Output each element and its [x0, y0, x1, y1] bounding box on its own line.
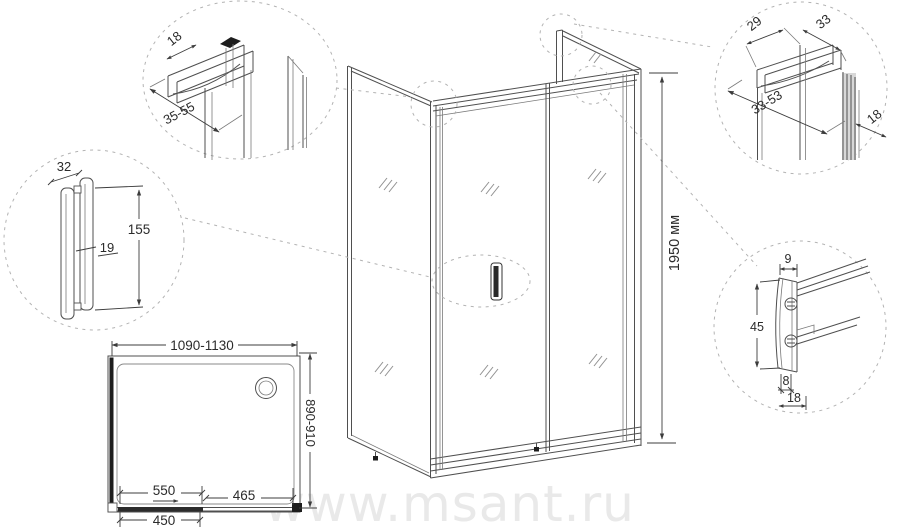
detail-right-profile-section: 9 45 8 18 — [714, 241, 886, 413]
height-dimension: 1950 мм — [647, 73, 683, 443]
detail-top-right-wall-profile: 29 33 33-53 18 — [715, 2, 887, 174]
detail-tl-adjust-range-label: 35-55 — [161, 99, 197, 128]
detail-r-bottom-width-label: 8 — [783, 374, 790, 388]
watermark: www.msant.ru — [264, 475, 635, 528]
detail-tr-outer-width-label: 33 — [813, 11, 834, 32]
screw-icon — [785, 298, 797, 310]
profile-insert-block — [220, 37, 241, 48]
plan-depth-range-label: 890-910 — [303, 399, 318, 447]
plan-opening-width-label: 450 — [153, 513, 176, 528]
detail-tl-flange-width-label: 18 — [164, 28, 185, 49]
detail-r-depth-label: 18 — [787, 391, 801, 405]
glass-reflection-marks — [375, 52, 607, 379]
detail-r-height-label: 45 — [750, 320, 764, 334]
detail-left-handle-front: 32 155 19 — [4, 150, 184, 330]
detail-l-height-label: 155 — [128, 222, 151, 237]
shower-enclosure-drawing: www.msant.ru — [0, 0, 900, 528]
detail-top-left-wall-profile: 18 35-55 — [143, 1, 337, 160]
wall-profile-end-plan — [292, 503, 302, 512]
plan-width-range-label: 1090-1130 — [170, 338, 234, 353]
screw-icon — [785, 335, 797, 347]
detail-tr-depth-label: 18 — [864, 106, 885, 127]
detail-l-grip-gap-label: 19 — [100, 240, 114, 255]
side-glass-panel-plan — [110, 358, 114, 511]
detail-r-top-width-label: 9 — [785, 252, 792, 266]
technical-drawing-page: www.msant.ru — [0, 0, 900, 528]
plan-fixed-panel-label: 465 — [233, 488, 256, 503]
sliding-door-plan — [118, 507, 203, 512]
detail-l-width-label: 32 — [57, 159, 71, 174]
plan-view: 1090-1130 890-910 550 465 450 — [108, 338, 318, 528]
glass-edge-hatch — [842, 72, 859, 160]
height-dimension-label: 1950 мм — [667, 215, 683, 271]
detail-tr-adjust-range-label: 33-53 — [749, 87, 785, 117]
detail-tr-inner-width-label: 29 — [744, 13, 765, 34]
door-handle — [491, 263, 502, 300]
plan-door-width-label: 550 — [153, 483, 176, 498]
